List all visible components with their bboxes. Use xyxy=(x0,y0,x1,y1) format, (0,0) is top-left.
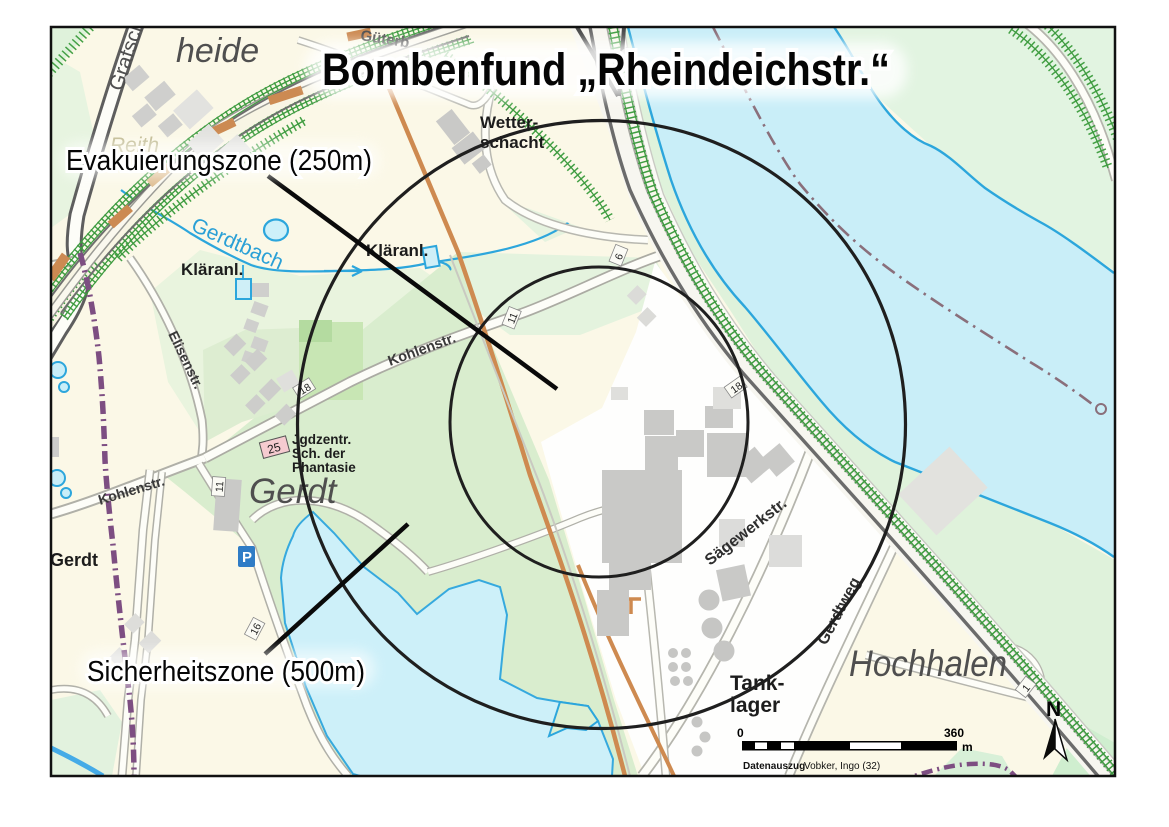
svg-text:Gerdt: Gerdt xyxy=(249,472,338,511)
svg-text:N: N xyxy=(1046,698,1061,721)
svg-text:m: m xyxy=(962,740,973,754)
svg-text:Kläranl.: Kläranl. xyxy=(181,260,243,279)
svg-text:P: P xyxy=(242,549,252,566)
svg-text:11: 11 xyxy=(214,481,227,493)
svg-text:Vobker, Ingo (32): Vobker, Ingo (32) xyxy=(804,761,880,772)
svg-text:heide: heide xyxy=(176,32,259,70)
svg-text:Datenauszug: Datenauszug xyxy=(743,761,805,772)
svg-text:360: 360 xyxy=(944,726,964,740)
svg-text:Evakuierungszone (250m): Evakuierungszone (250m) xyxy=(66,145,372,177)
svg-text:0: 0 xyxy=(737,726,744,740)
svg-text:Tank-: Tank- xyxy=(730,672,784,695)
svg-text:Hochhalen: Hochhalen xyxy=(849,643,1007,684)
svg-text:Jgdzentr.: Jgdzentr. xyxy=(292,432,351,447)
svg-text:Sicherheitszone (500m): Sicherheitszone (500m) xyxy=(87,656,365,688)
svg-text:Bombenfund „Rheindeichstr.“: Bombenfund „Rheindeichstr.“ xyxy=(322,44,890,95)
svg-text:Gerdt: Gerdt xyxy=(50,550,98,570)
